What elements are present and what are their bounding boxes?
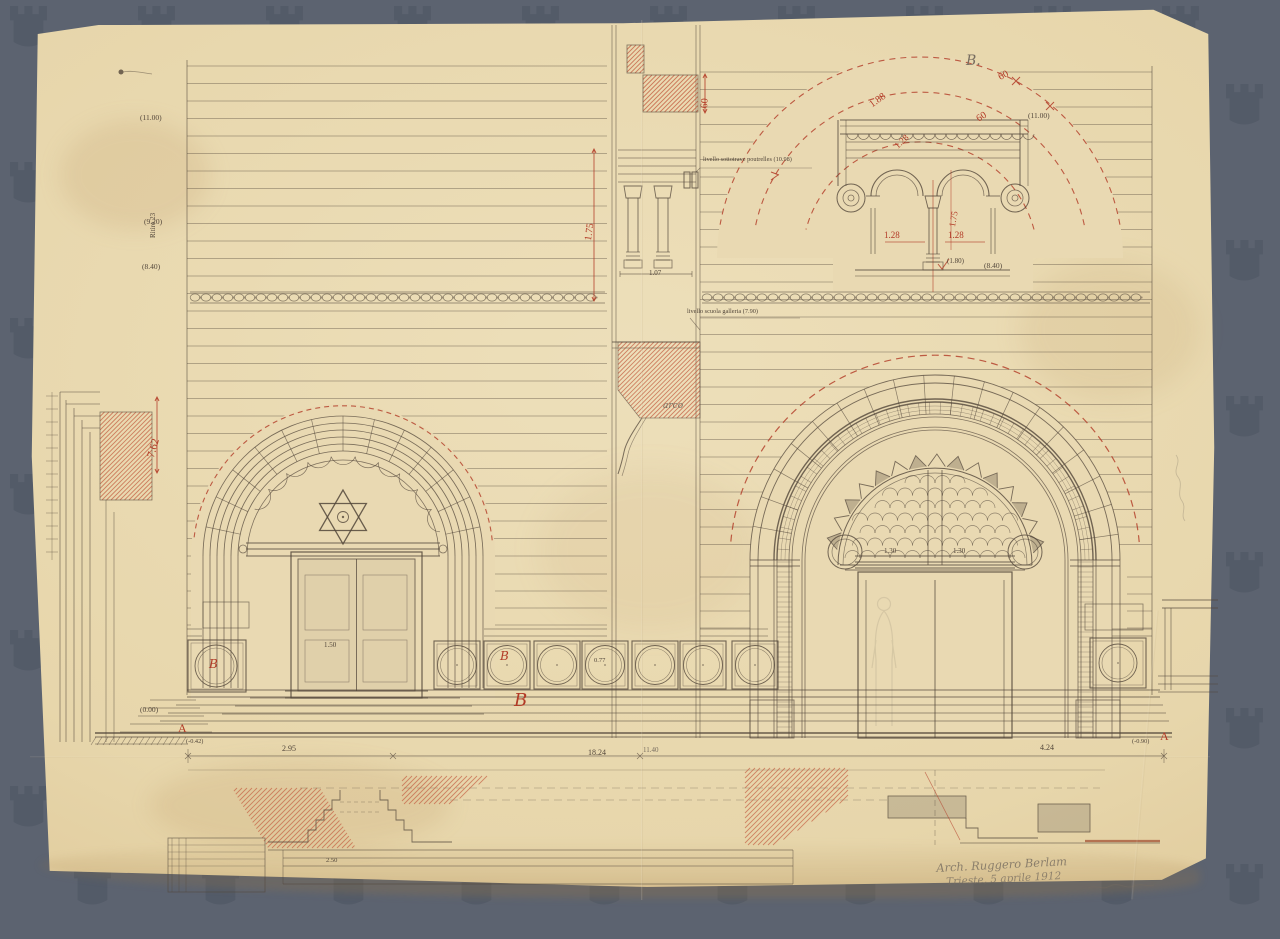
dimension: 0.77 [594, 658, 605, 665]
elevation-label: (1.80) [947, 258, 964, 265]
annotation-layer: (11.00) Ritiro 23 (9.20) (8.40) (11.00) … [0, 0, 1280, 939]
detail-letter-b: B. [966, 54, 981, 68]
dimension: 1.75 [584, 223, 596, 242]
elevation-label: (8.40) [142, 263, 160, 271]
elevation-label: (11.00) [1028, 112, 1050, 120]
dimension: 1.28 [893, 133, 911, 150]
note-gallery-level: livello scuola galleria (7.90) [687, 309, 758, 315]
level-label: (-0.90) [1132, 739, 1149, 745]
dimension: 11.40 [643, 747, 659, 754]
level-label: (0.00) [140, 706, 158, 714]
section-letter-a: A [1160, 730, 1169, 742]
dimension: 1.30 [884, 548, 896, 555]
dimension: 1.88 [868, 92, 888, 110]
arco-note: arco [663, 402, 683, 411]
note-beam-level: livello sottotrave poutrelles (10.98) [703, 157, 792, 163]
dimension: 4.24 [1040, 744, 1054, 752]
elevation-label: (8.40) [984, 262, 1002, 270]
elevation-label: (9.20) [144, 218, 162, 226]
reference-letter-b: B [514, 692, 527, 710]
dimension: 60 [975, 111, 989, 125]
dimension: 1.30 [953, 548, 965, 555]
dimension: 1.50 [324, 642, 336, 649]
dimension: 1.07 [649, 270, 661, 277]
dimension: 7.62 [146, 437, 162, 459]
dimension: 18.24 [588, 749, 606, 757]
dimension: 60 [997, 69, 1011, 83]
section-letter-a: A [178, 722, 187, 734]
reference-letter-b: B [500, 650, 509, 662]
scanned-drawing-page: (11.00) Ritiro 23 (9.20) (8.40) (11.00) … [0, 0, 1280, 939]
dimension: 2.95 [282, 745, 296, 753]
dimension: 1.28 [948, 231, 964, 240]
dimension: 60 [700, 98, 711, 109]
level-label: (-0.42) [186, 739, 203, 745]
dimension: 1.75 [948, 210, 960, 227]
reference-letter-b: B [209, 658, 218, 670]
dimension: 2.50 [326, 858, 337, 865]
dimension: 1.28 [884, 231, 900, 240]
elevation-label: (11.00) [140, 114, 162, 122]
